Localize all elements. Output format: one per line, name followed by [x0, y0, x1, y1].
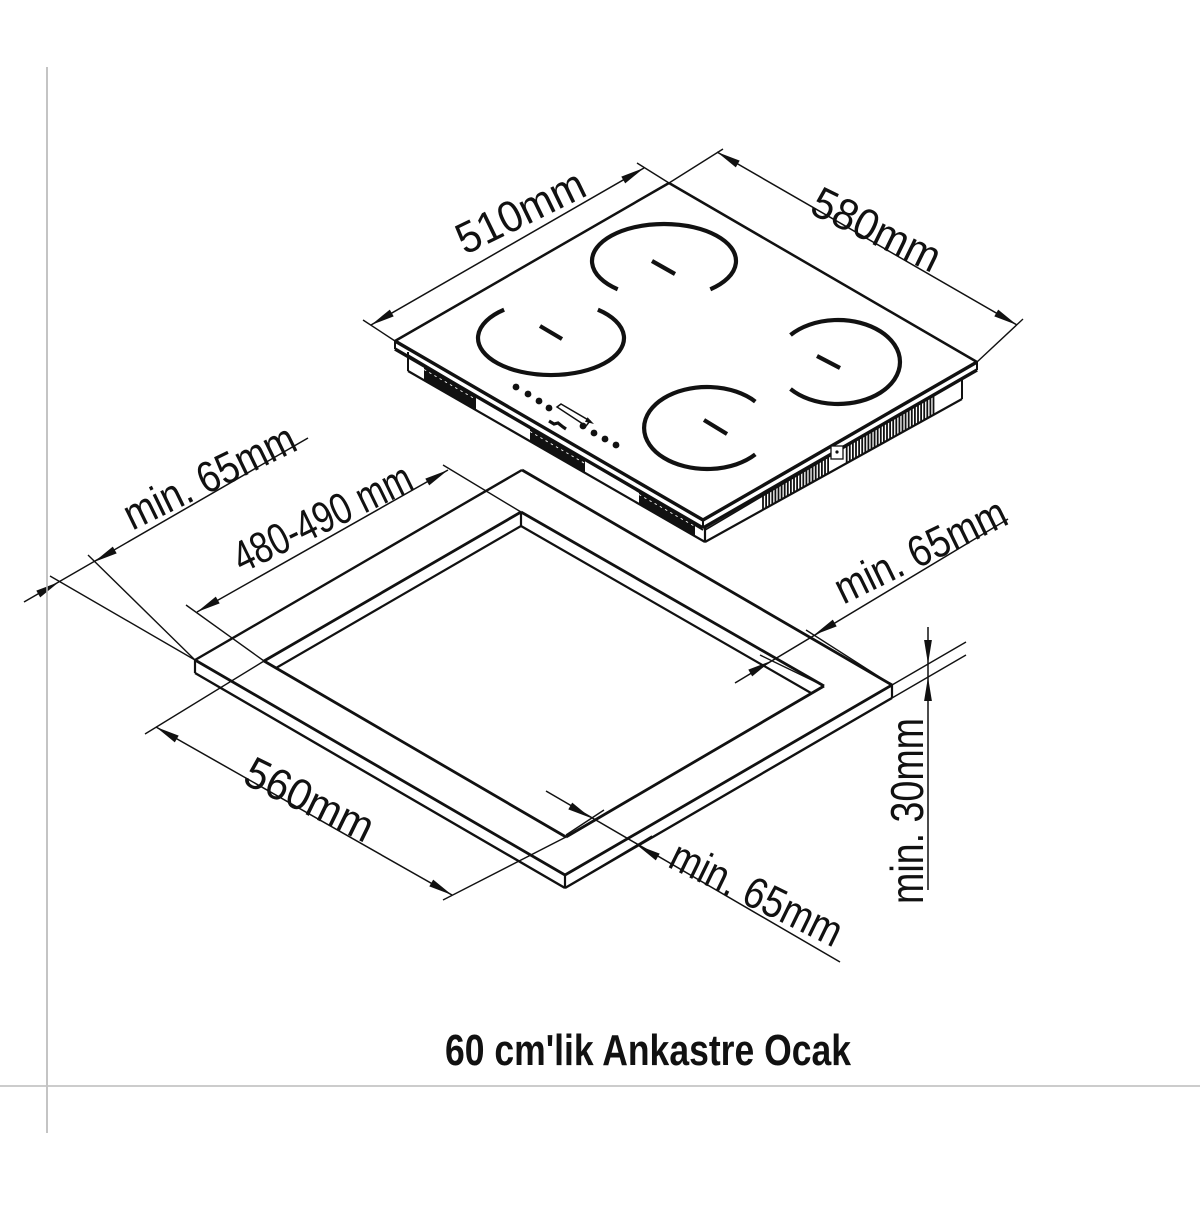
svg-text:60 cm'lik Ankastre Ocak: 60 cm'lik Ankastre Ocak	[445, 1026, 851, 1075]
svg-text:min. 30mm: min. 30mm	[881, 718, 933, 904]
